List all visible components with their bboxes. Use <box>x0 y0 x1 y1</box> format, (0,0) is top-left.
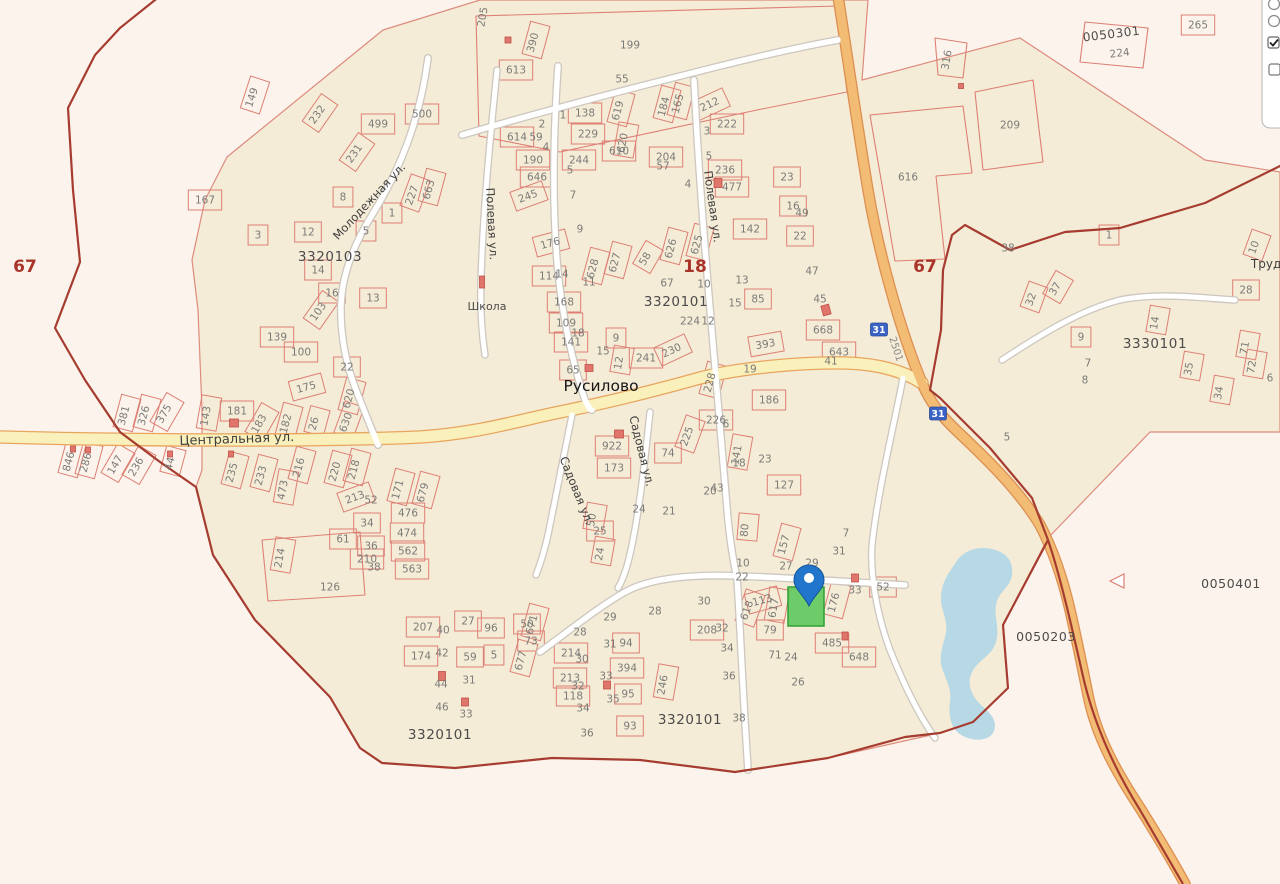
parcel-label: 33 <box>459 709 472 721</box>
parcel-label: 14 <box>311 265 325 277</box>
quarter-code-label: 3330101 <box>1123 336 1187 352</box>
radio-option-1[interactable] <box>1269 0 1280 10</box>
parcel-label: 24 <box>784 652 798 664</box>
parcel-label: 23 <box>780 172 793 184</box>
parcel-label: 4 <box>685 179 692 191</box>
parcel-label: 208 <box>697 625 717 637</box>
parcel-label: 15 <box>596 346 609 358</box>
parcel-label: 14 <box>1148 315 1162 331</box>
parcel-label: 45 <box>813 294 826 306</box>
quarter-code-label: 3320101 <box>408 727 472 743</box>
parcel-label: 1 <box>1106 230 1113 242</box>
parcel-label: 71 <box>768 650 781 662</box>
parcel-label: 36 <box>364 541 378 553</box>
route-badge-label: 31 <box>872 325 885 336</box>
parcel-label: 474 <box>397 528 417 540</box>
parcel-label: 6 <box>1267 373 1274 385</box>
parcel-label: 33 <box>848 585 861 597</box>
checkbox-unchecked[interactable] <box>1269 64 1280 75</box>
building <box>842 632 848 640</box>
parcel-label: 32 <box>715 623 728 635</box>
parcel-label: 30 <box>575 654 588 666</box>
parcel-label: 65 <box>566 365 579 377</box>
building <box>86 447 91 453</box>
parcel-label: 168 <box>554 297 574 309</box>
parcel-label: 10 <box>697 279 710 291</box>
parcel-label: 190 <box>523 155 543 167</box>
parcel-label: 19 <box>743 364 756 376</box>
parcel-label: 7 <box>1085 358 1092 370</box>
parcel-label: 9 <box>613 333 620 345</box>
parcel-label: 18 <box>571 328 584 340</box>
parcel-label: 52 <box>876 582 889 594</box>
building <box>505 37 511 43</box>
parcel-label: 73 <box>524 636 537 648</box>
district-number-label: 18 <box>683 257 707 277</box>
parcel-label: 3 <box>255 230 262 242</box>
parcel-label: 5 <box>567 165 574 177</box>
parcel-label: 15 <box>728 298 741 310</box>
parcel-label: 477 <box>722 182 742 194</box>
building <box>959 84 964 89</box>
parcel-label: 1 <box>389 208 396 220</box>
parcel-label: 35 <box>1182 361 1196 376</box>
parcel-label: 13 <box>366 293 379 305</box>
parcel-label: 5 <box>491 650 498 662</box>
building <box>480 276 485 288</box>
parcel-label: 42 <box>435 648 448 660</box>
parcel-label: 31 <box>603 639 616 651</box>
parcel-label: 265 <box>1188 20 1208 32</box>
building <box>168 451 173 457</box>
parcel-label: 500 <box>412 109 432 121</box>
parcel-label: 12 <box>701 316 714 328</box>
parcel-label: 241 <box>636 353 656 365</box>
parcel-label: 35 <box>606 694 619 706</box>
parcel-label: 59 <box>529 132 542 144</box>
parcel-label: 14 <box>555 269 569 281</box>
parcel-label: 138 <box>575 108 595 120</box>
parcel-label: 8 <box>1082 375 1089 387</box>
town-label: Русилово <box>563 377 638 395</box>
parcel-label: 95 <box>621 689 634 701</box>
parcel-label: 36 <box>580 728 594 740</box>
parcel-label: 614 <box>507 132 527 144</box>
parcel-label: 31 <box>832 546 845 558</box>
parcel-label: 12 <box>301 227 314 239</box>
parcel-label: 199 <box>620 40 640 52</box>
parcel-label: 127 <box>774 480 794 492</box>
parcel-label: 49 <box>795 208 808 220</box>
parcel-label: 5 <box>1004 432 1011 444</box>
parcel-label: 1 <box>560 110 567 122</box>
parcel-label: 38 <box>1001 243 1014 255</box>
parcel-label: 40 <box>436 625 449 637</box>
parcel-label: 646 <box>527 172 547 184</box>
parcel-label: 61 <box>336 534 349 546</box>
parcel-label: 10 <box>736 558 749 570</box>
parcel-label: 57 <box>656 161 669 173</box>
parcel-label: 9 <box>1078 332 1085 344</box>
parcel-label: 12 <box>612 355 626 370</box>
parcel-label: 5 <box>706 151 713 163</box>
building <box>71 446 76 452</box>
building <box>229 451 234 457</box>
parcel-label: 224 <box>680 316 700 328</box>
parcel-label: 9 <box>577 224 584 236</box>
parcel-label: 96 <box>484 623 498 635</box>
building <box>462 698 469 706</box>
parcel-label: 34 <box>1212 385 1226 401</box>
parcel-label: 139 <box>267 332 287 344</box>
parcel-label: 80 <box>738 523 751 537</box>
parcel-label: 94 <box>619 638 633 650</box>
parcel-label: 3 <box>704 126 711 138</box>
parcel-label: 236 <box>715 165 735 177</box>
parcel-label: 34 <box>576 703 590 715</box>
parcel-label: 31 <box>462 675 475 687</box>
parcel-label: 7 <box>570 190 577 202</box>
parcel-label: 28 <box>1239 285 1252 297</box>
building <box>615 430 624 438</box>
parcel-label: 610 <box>609 146 629 158</box>
parcel-label: 22 <box>793 231 806 243</box>
map-pin-hole <box>804 573 814 583</box>
parcel-label: 8 <box>340 192 347 204</box>
parcel-label: 394 <box>617 663 637 675</box>
parcel-label: 2 <box>539 119 546 131</box>
quarter-code-label: 3320103 <box>298 249 362 265</box>
parcel-label: 85 <box>751 294 764 306</box>
parcel-label: 173 <box>604 463 624 475</box>
parcel-label: 24 <box>632 504 646 516</box>
parcel-label: 93 <box>623 721 636 733</box>
building <box>852 574 859 582</box>
parcel-label: 38 <box>732 713 745 725</box>
parcel-label: 181 <box>227 406 247 418</box>
parcel-label: 613 <box>506 65 526 77</box>
parcel-label: 167 <box>195 195 215 207</box>
parcel-label: 29 <box>603 612 616 624</box>
parcel-label: 38 <box>367 562 380 574</box>
parcel-label: 27 <box>779 561 792 573</box>
parcel-label: 72 <box>1245 359 1259 374</box>
parcel-label: 11 <box>582 277 595 289</box>
parcel-label: 25 <box>593 526 606 538</box>
parcel-label: 476 <box>398 508 418 520</box>
parcel-label: 13 <box>735 275 748 287</box>
district-number-label: 67 <box>13 257 37 277</box>
parcel-label: 74 <box>661 448 675 460</box>
parcel-label: 485 <box>822 638 842 650</box>
parcel-label: 28 <box>573 627 586 639</box>
route-badge-label: 31 <box>931 409 944 420</box>
parcel-label: 30 <box>697 596 710 608</box>
parcel-label: 21 <box>662 506 675 518</box>
parcel-label: 32 <box>571 681 584 693</box>
district-number-label: 67 <box>913 257 937 277</box>
parcel-label: 186 <box>759 395 779 407</box>
parcel-label: 59 <box>463 652 476 664</box>
street-label: Труди <box>1250 257 1280 271</box>
parcel-label: 207 <box>413 622 433 634</box>
parcel-label: 52 <box>364 495 377 507</box>
checkbox-checked[interactable] <box>1268 37 1279 48</box>
parcel-label: 4 <box>543 142 550 154</box>
parcel-label: 222 <box>717 119 737 131</box>
parcel-label: 668 <box>813 325 833 337</box>
parcel-label: 562 <box>398 546 418 558</box>
parcel-label: 563 <box>402 564 422 576</box>
parcel-label: 28 <box>648 606 661 618</box>
parcel-label: 16 <box>325 288 339 300</box>
parcel-label: 43 <box>710 483 723 495</box>
parcel-label: 26 <box>791 677 805 689</box>
parcel-label: 18 <box>732 458 745 470</box>
parcel-label: 22 <box>735 572 748 584</box>
radio-option-2[interactable] <box>1269 16 1280 27</box>
parcel-label: 648 <box>849 652 869 664</box>
parcel-label: 41 <box>824 356 837 368</box>
parcel-label: 47 <box>805 266 818 278</box>
parcel-label: 922 <box>602 441 622 453</box>
parcel-label: 34 <box>360 518 374 530</box>
parcel-label: 499 <box>368 119 388 131</box>
parcel-label: 100 <box>291 347 311 359</box>
parcel-label: 24 <box>593 546 607 562</box>
building <box>230 419 239 427</box>
school-label: Школа <box>468 300 507 313</box>
quarter-code-label: 0050401 <box>1201 576 1261 591</box>
parcel-label: 34 <box>720 643 734 655</box>
parcel-label: 79 <box>763 625 776 637</box>
parcel-label: 6 <box>723 419 730 431</box>
cadastral-map[interactable]: 1492324995002311673812152276631416131031… <box>0 0 1280 884</box>
parcel-label: 44 <box>434 679 448 691</box>
parcel-label: 142 <box>740 224 760 236</box>
parcel-label: 27 <box>461 616 474 628</box>
parcel-label: 7 <box>843 528 850 540</box>
quarter-code-label: 3320101 <box>644 294 708 310</box>
parcel-label: 55 <box>615 74 628 86</box>
parcel-label: 224 <box>1109 46 1131 60</box>
building <box>585 365 593 372</box>
parcel-label: 67 <box>660 278 673 290</box>
parcel-label: 174 <box>411 651 431 663</box>
parcel-label: 126 <box>320 582 340 594</box>
parcel-label: 209 <box>1000 120 1020 132</box>
parcel-label: 33 <box>599 671 612 683</box>
parcel-label: 36 <box>722 671 736 683</box>
parcel-label: 22 <box>340 362 353 374</box>
quarter-code-label: 3320101 <box>658 712 722 728</box>
parcel-label: 5 <box>363 226 370 238</box>
parcel-label: 23 <box>758 454 771 466</box>
parcel-label: 616 <box>898 172 918 184</box>
parcel-label: 71 <box>1238 340 1252 355</box>
parcel-label: 229 <box>578 129 598 141</box>
quarter-code-label: 0050203 <box>1016 629 1076 644</box>
parcel-label: 46 <box>435 702 449 714</box>
